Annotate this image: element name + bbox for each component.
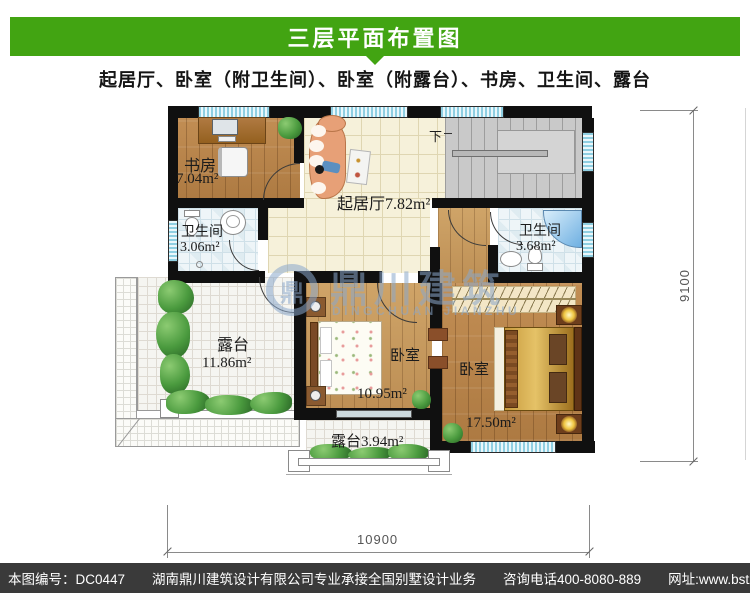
door-jamb-upper (428, 328, 448, 341)
footer-plan-number: 本图编号：DC0447 (8, 568, 125, 588)
bedroom-center-plant (412, 390, 431, 409)
bed-right-pillow (549, 334, 567, 365)
dim-right-value: 9100 (677, 269, 692, 302)
bed-right-pillow (549, 372, 567, 403)
bath-left-area: 3.06m² (180, 240, 220, 256)
terrace-small-slider (336, 410, 412, 418)
bedroom-right-label: 卧室 (459, 358, 489, 379)
dim-ext-right-bottom (640, 461, 698, 462)
sofa-cushion (311, 182, 326, 194)
sofa-cushion (309, 140, 324, 152)
terrace-plant (160, 354, 190, 394)
stairs-down-label: 下 (429, 126, 442, 145)
railing-outline (286, 474, 452, 475)
window-right-bath (582, 222, 594, 258)
bed-right-roll (505, 330, 518, 408)
watermark-logo: 鼎 (266, 264, 318, 316)
terrace-plant (156, 312, 190, 358)
dim-line-right (693, 110, 694, 462)
bath-left-label: 卫生间 (181, 221, 223, 241)
stairs-down-tick (444, 133, 452, 134)
keyboard (218, 136, 236, 142)
fan-icon (310, 390, 321, 401)
watermark: 鼎 鼎川建筑 DINGCHUAN JIANZHU (266, 262, 506, 324)
bedroom-right-area: 17.50m² (466, 415, 516, 432)
sink-left-basin (226, 215, 240, 228)
window-right-stairs (582, 132, 594, 172)
wall-bath-left-right (258, 208, 268, 240)
study-plant (278, 117, 302, 139)
bath-right-area: 3.68m² (516, 239, 556, 255)
terrace-large-label: 露台 (217, 331, 249, 355)
footer-phone: 咨询电话400-8080-889 (503, 568, 641, 588)
window-bottom-bedroom (470, 441, 556, 453)
terrace-large-area: 11.86m² (202, 355, 251, 372)
monitor (212, 119, 238, 135)
watermark-en: DINGCHUAN JIANZHU (332, 304, 520, 318)
terrace-small-label: 露台3.94m² (331, 430, 403, 451)
page-edge-line (745, 108, 746, 460)
footer-website: 网址:www.bstzcs.com (668, 568, 750, 588)
desk-chair (218, 147, 248, 177)
terrace-plant (250, 392, 292, 414)
railing-band (298, 458, 440, 466)
toilet-right (527, 263, 543, 271)
terrace-plant (158, 280, 194, 314)
bedroom-center-label: 卧室 (390, 344, 420, 365)
roof-overhang-bottom (115, 418, 300, 447)
sofa-cushion (311, 125, 326, 137)
living-label: 起居厅7.82m² (337, 190, 430, 214)
bath-right-label: 卫生间 (519, 220, 561, 240)
floor-drain (196, 261, 203, 268)
bed-center-pillow (320, 360, 332, 387)
watermark-logo-glyph: 鼎 (280, 273, 304, 308)
toilet-left (184, 210, 200, 217)
dim-line-bottom (167, 552, 590, 553)
lamp (561, 416, 577, 432)
bedroom-center-area: 10.95m² (357, 386, 407, 403)
study-area: 7.04m² (176, 171, 218, 188)
window-left-bath (168, 220, 178, 262)
dim-ext-right-top (640, 110, 698, 111)
window-top-stairs (440, 106, 504, 118)
stair-handrail (452, 150, 548, 157)
window-top-living (330, 106, 408, 118)
terrace-plant (205, 395, 255, 415)
rug (346, 149, 371, 185)
bed-center-headboard (310, 322, 318, 394)
person-head (315, 165, 324, 174)
bed-center-pillow (320, 327, 332, 354)
bedroom-right-plant (443, 423, 463, 443)
wall-stairs-bottom (432, 198, 592, 208)
lamp (561, 307, 577, 323)
dim-bottom-value: 10900 (357, 532, 398, 547)
door-jamb-lower (428, 356, 448, 369)
bed-right-headboard (574, 327, 582, 411)
floor-plan: 书房 7.04m² 起居厅7.82m² 卫生间 3.06m² 卫生间 3.68m… (0, 0, 750, 560)
footer-company: 湖南鼎川建筑设计有限公司专业承接全国别墅设计业务 (152, 568, 476, 588)
footer-bar: 本图编号：DC0447 湖南鼎川建筑设计有限公司专业承接全国别墅设计业务 咨询电… (0, 563, 750, 593)
